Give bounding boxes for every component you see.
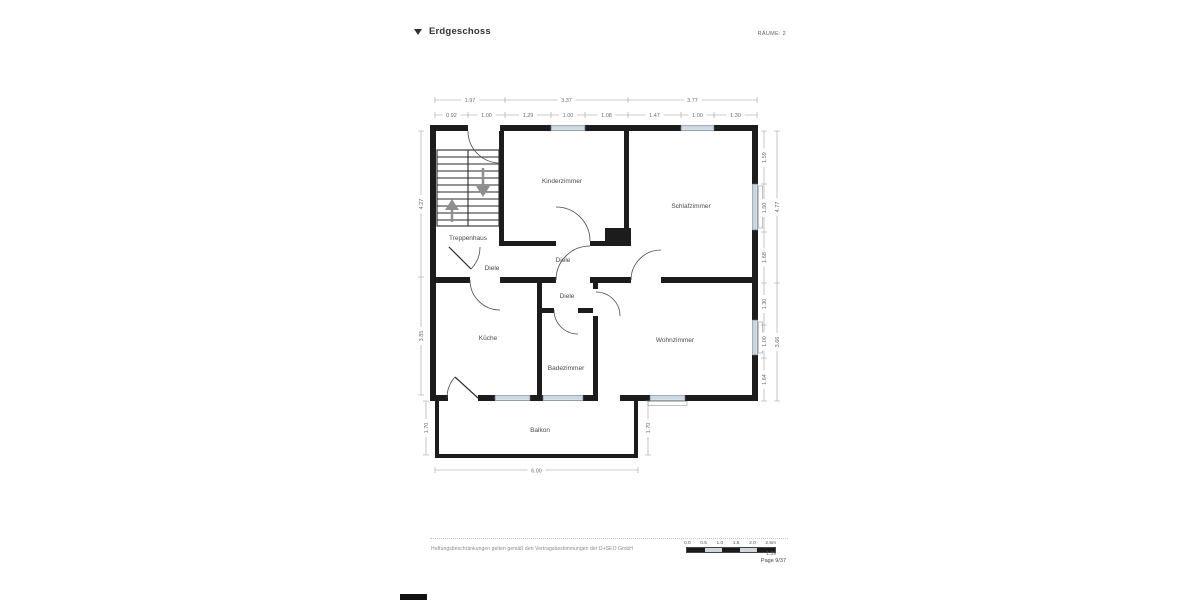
door-arc-schlafzimmer [631, 250, 661, 280]
dim-label: 3.37 [561, 98, 572, 104]
room-label-wohnzimmer: Wohnzimmer [656, 337, 695, 344]
scale-tick: 1.5 [733, 541, 740, 546]
page: Erdgeschoss RÄUME: 2 [0, 0, 1200, 600]
door-arc-kueche-balkon [447, 377, 455, 398]
scale-ratio-label: 1:59 [684, 551, 776, 557]
dim-label: 1.00 [762, 336, 768, 347]
room-label-kinderzimmer: Kinderzimmer [542, 178, 583, 185]
dim-label: 1.00 [481, 113, 492, 119]
dim-label: 1.68 [762, 252, 768, 263]
dim-label: 1.70 [424, 423, 430, 434]
floorplan-drawing: 1.97 3.37 3.77 0.92 1.00 1.29 1.00 1.08 … [0, 0, 1200, 600]
dim-label: 1.59 [762, 152, 768, 163]
door-leaf-apartment [449, 247, 471, 269]
page-number-label: Page 9/37 [688, 558, 786, 564]
scale-tick: 1.0 [717, 541, 724, 546]
door-arc-badezimmer [554, 310, 578, 334]
dim-label: 3.77 [687, 98, 698, 104]
dim-label: 1.64 [762, 374, 768, 385]
disclaimer-text: Haftungsbeschränkungen gelten gemäß den … [431, 546, 633, 552]
window-sills [648, 186, 763, 406]
dim-label: 1.00 [563, 113, 574, 119]
room-label-schlafzimmer: Schlafzimmer [671, 203, 711, 210]
door-arc-kinderzimmer [556, 207, 590, 241]
dim-label: 1.50 [762, 203, 768, 214]
dim-label: 1.30 [762, 299, 768, 310]
dim-label: 1.97 [465, 98, 476, 104]
room-label-balkon: Balkon [530, 427, 550, 434]
room-label-kueche: Küche [479, 335, 498, 342]
dim-label: 1.29 [523, 113, 534, 119]
dim-label: 1.70 [646, 423, 652, 434]
scale-tick: 0.0 [684, 541, 691, 546]
room-label-badezimmer: Badezimmer [548, 365, 585, 372]
scan-corner-mark [400, 594, 427, 600]
room-label-diele-left: Diele [485, 265, 500, 272]
dim-label: 1.30 [730, 113, 741, 119]
footer-separator [430, 538, 788, 539]
dim-label: 0.92 [446, 113, 457, 119]
scale-tick-labels: 0.0 0.5 1.0 1.5 2.0 2.5m [684, 541, 776, 546]
door-arc-wohnzimmer [596, 292, 620, 316]
door-leaf-kueche-balkon [455, 377, 478, 398]
door-arc-apartment [471, 247, 480, 269]
scale-tick: 2.5m [765, 541, 776, 546]
door-arc-kueche [470, 280, 500, 310]
scale-tick: 0.5 [700, 541, 707, 546]
room-label-diele-upper: Diele [556, 257, 571, 264]
scale-tick: 2.0 [749, 541, 756, 546]
room-label-diele-lower: Diele [560, 293, 575, 300]
dim-label: 6.00 [531, 469, 542, 475]
dim-label: 1.08 [601, 113, 612, 119]
room-label-treppenhaus: Treppenhaus [449, 235, 488, 242]
dim-label: 3.66 [775, 337, 781, 348]
dim-label: 3.85 [419, 331, 425, 342]
dim-label: 4.77 [775, 202, 781, 213]
window-sill [648, 402, 687, 406]
dim-label: 1.00 [692, 113, 703, 119]
dim-label: 1.47 [649, 113, 660, 119]
dim-label: 4.27 [419, 199, 425, 210]
